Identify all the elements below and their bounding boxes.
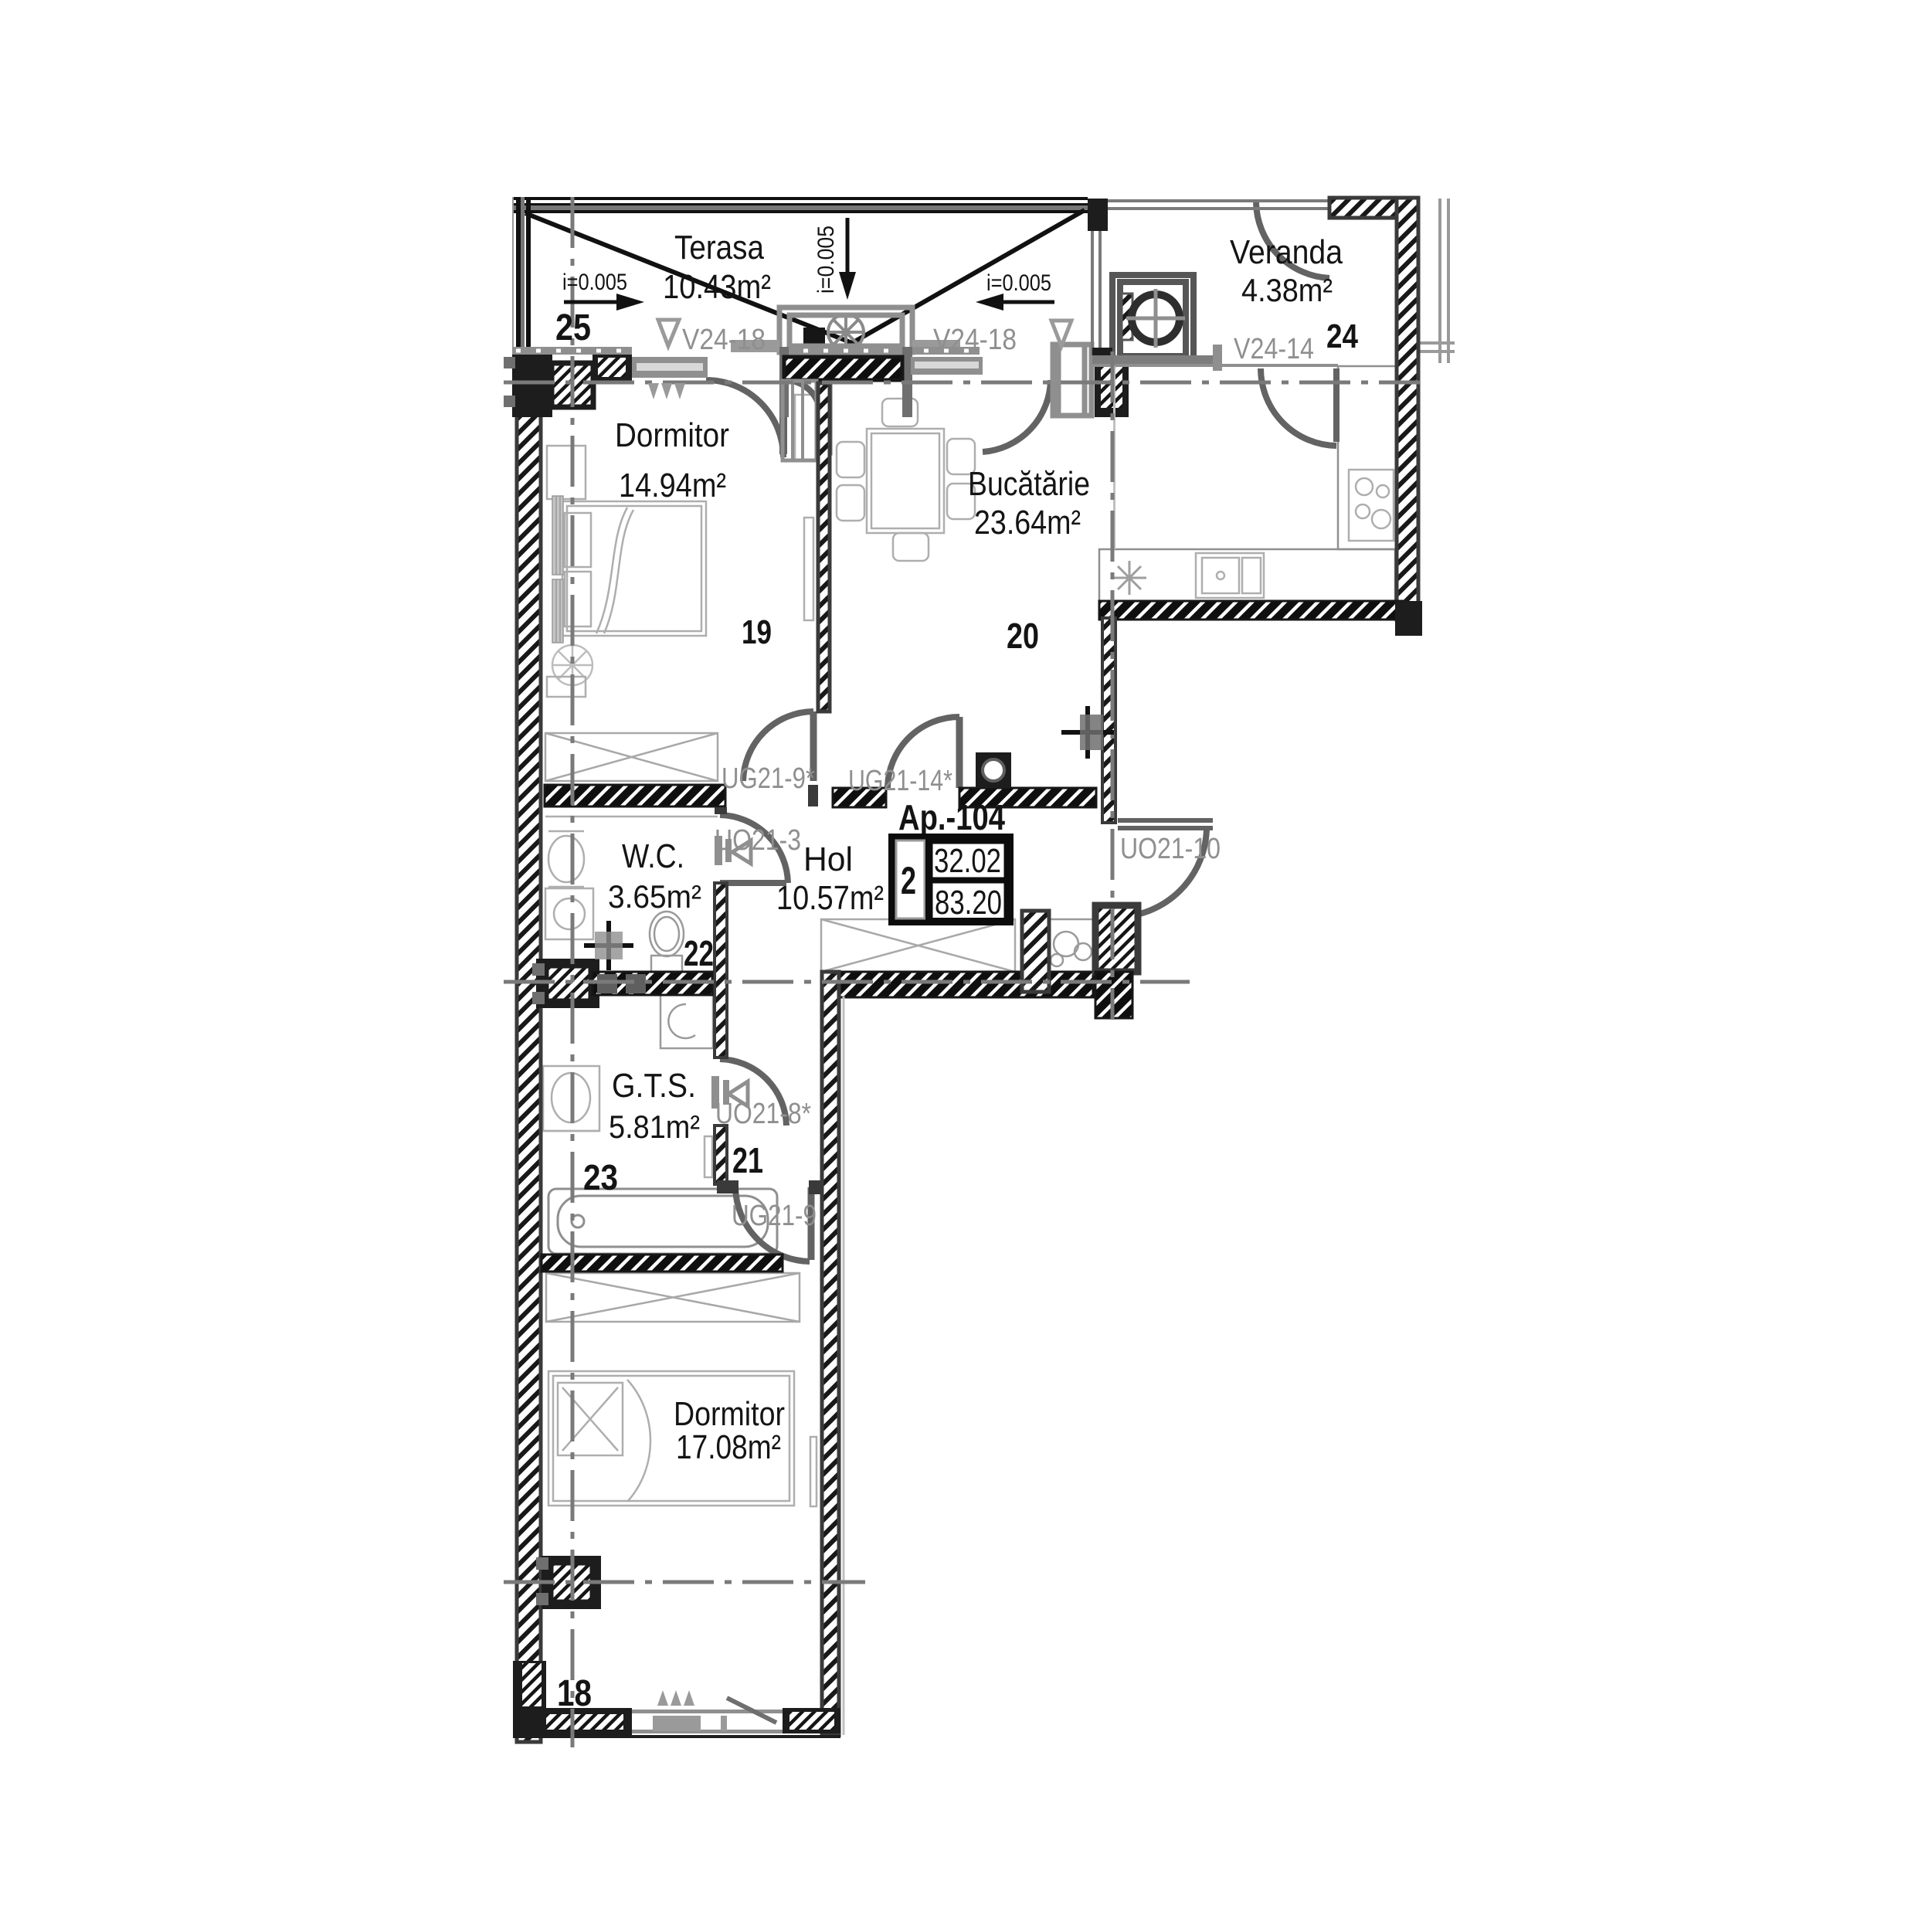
svg-text:4.38m²: 4.38m² [1241,272,1333,308]
svg-text:i=0.005: i=0.005 [813,226,839,294]
svg-text:UO21-10: UO21-10 [1120,833,1221,865]
svg-text:UO21-3: UO21-3 [715,824,801,857]
svg-text:V24-18: V24-18 [933,324,1017,356]
svg-text:32.02: 32.02 [934,842,1001,880]
svg-text:V24-18: V24-18 [682,324,766,356]
svg-text:Bucătărie: Bucătărie [968,465,1090,503]
svg-text:G.T.S.: G.T.S. [612,1067,696,1105]
svg-text:Ap.-104: Ap.-104 [898,797,1005,837]
svg-text:3.65m²: 3.65m² [608,878,701,915]
svg-text:14.94m²: 14.94m² [619,467,726,504]
svg-text:Dormitor: Dormitor [674,1395,785,1433]
svg-text:UG21-9*: UG21-9* [722,762,815,795]
svg-text:19: 19 [742,613,772,651]
svg-text:Terasa: Terasa [674,229,764,267]
svg-text:10.43m²: 10.43m² [663,268,771,306]
svg-text:24: 24 [1326,317,1358,355]
svg-text:UO21-8*: UO21-8* [715,1098,811,1130]
svg-text:i=0.005: i=0.005 [986,270,1051,296]
svg-text:22: 22 [684,933,714,973]
svg-text:Veranda: Veranda [1230,233,1343,271]
svg-text:UG21-14*: UG21-14* [848,765,952,797]
svg-text:23.64m²: 23.64m² [974,504,1081,542]
svg-text:21: 21 [732,1140,763,1180]
svg-text:20: 20 [1007,616,1039,656]
svg-text:i=0.005: i=0.005 [562,270,627,295]
svg-text:W.C.: W.C. [622,837,684,875]
svg-text:2: 2 [901,859,916,902]
svg-text:Hol: Hol [803,840,853,878]
svg-text:18: 18 [557,1673,592,1714]
svg-text:23: 23 [583,1157,618,1197]
svg-text:83.20: 83.20 [935,884,1002,922]
svg-text:V24-14: V24-14 [1234,333,1314,365]
svg-text:17.08m²: 17.08m² [676,1428,781,1466]
svg-text:5.81m²: 5.81m² [609,1109,700,1145]
svg-text:25: 25 [555,307,591,348]
svg-text:10.57m²: 10.57m² [776,879,884,917]
svg-text:UG21-9: UG21-9 [732,1200,817,1232]
svg-text:Dormitor: Dormitor [615,416,729,454]
